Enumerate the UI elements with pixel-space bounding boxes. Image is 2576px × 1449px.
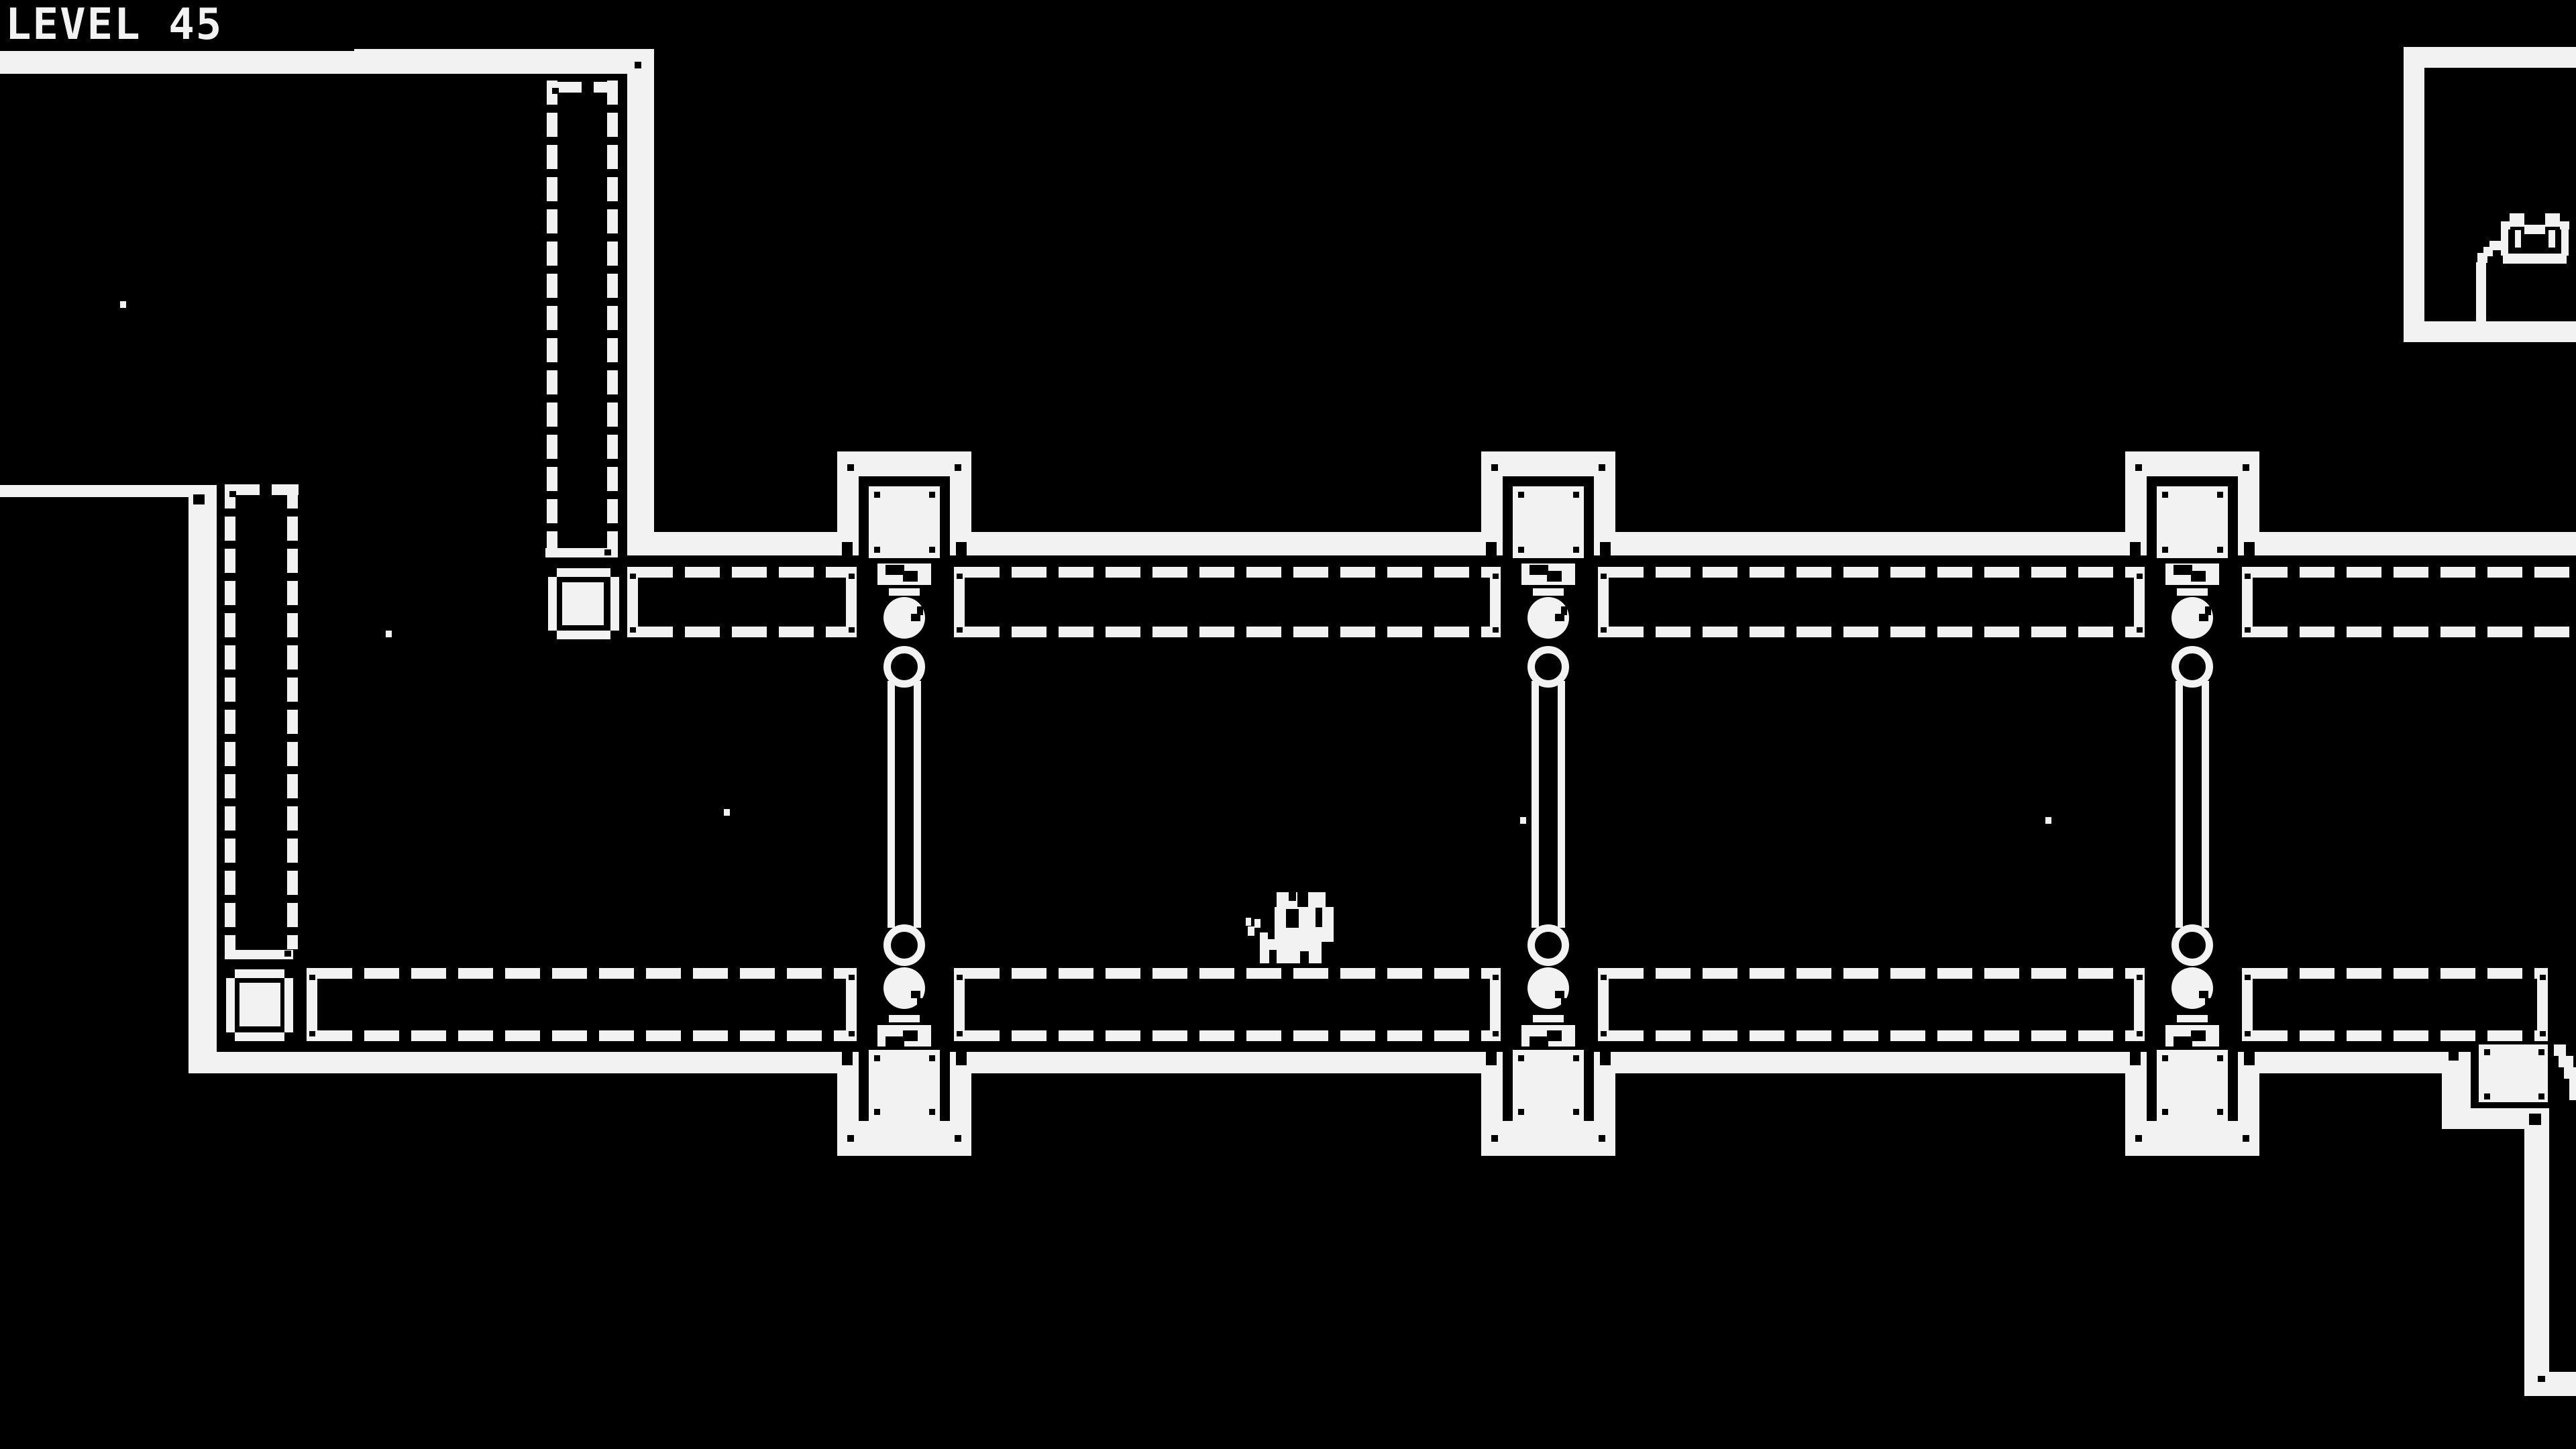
rivet-dot bbox=[2538, 1376, 2545, 1382]
capsule-core bbox=[239, 983, 280, 1026]
wall-right bbox=[627, 74, 654, 532]
cat-tail bbox=[1246, 918, 1251, 926]
capsule-bevel bbox=[226, 969, 235, 978]
dashed-rail bbox=[1609, 968, 2134, 979]
corner-notch bbox=[193, 494, 205, 504]
corner-notch bbox=[2529, 1114, 2541, 1125]
dashed-rail bbox=[2253, 627, 2576, 637]
corner-notch bbox=[842, 542, 853, 555]
cat-tail bbox=[1248, 926, 1254, 936]
dashed-rail bbox=[1609, 627, 2134, 637]
corner-notch bbox=[956, 1052, 967, 1065]
capsule-core bbox=[562, 582, 604, 625]
cat-ear-notch bbox=[1289, 892, 1296, 901]
wall-top-band bbox=[0, 49, 654, 74]
dashed-rail bbox=[638, 567, 846, 578]
vent-slash bbox=[1529, 1036, 1548, 1046]
rivet-dot bbox=[2217, 492, 2223, 498]
rivet-dot bbox=[874, 1109, 880, 1115]
down-shaft-wall bbox=[2524, 1129, 2549, 1372]
dashed-rail bbox=[2253, 567, 2576, 578]
rod-ring bbox=[883, 924, 925, 966]
rod-shaft bbox=[2176, 681, 2183, 928]
rivet-dot bbox=[2538, 1049, 2544, 1055]
cat-ear bbox=[1308, 892, 1326, 908]
vent-slash bbox=[1529, 565, 1548, 575]
capsule-item[interactable] bbox=[226, 969, 293, 1041]
dashed-rail bbox=[965, 968, 1490, 979]
wall-left bbox=[189, 485, 217, 1073]
rod-ring bbox=[1527, 924, 1569, 966]
suit-head-side bbox=[2501, 226, 2508, 256]
corner-notch bbox=[2449, 1052, 2459, 1061]
dashed-rail bbox=[965, 627, 1490, 637]
capsule-bevel bbox=[284, 969, 293, 978]
rod-shaft bbox=[1532, 681, 1539, 928]
rivet-dot bbox=[2540, 975, 2546, 980]
suit-ear bbox=[2545, 213, 2560, 227]
stair-step bbox=[2564, 1067, 2576, 1079]
suit-chin bbox=[2503, 254, 2567, 264]
portrait-frame bbox=[2404, 47, 2576, 342]
capsule-bevel bbox=[610, 631, 619, 639]
rivet-dot bbox=[229, 491, 236, 497]
rivet-dot bbox=[2162, 1109, 2168, 1115]
valve-bar bbox=[1533, 1015, 1564, 1022]
rod-shaft bbox=[1558, 681, 1565, 928]
rivet-dot bbox=[1599, 1135, 1605, 1142]
valve-notch bbox=[917, 606, 923, 615]
vent-slash bbox=[885, 565, 904, 575]
valve-bar bbox=[1533, 588, 1564, 596]
cat-tail bbox=[1254, 919, 1260, 928]
rivet-dot bbox=[2162, 547, 2168, 553]
cat-tail bbox=[1260, 932, 1268, 941]
suit-head-side bbox=[2561, 226, 2569, 256]
cat-leg-gap bbox=[1269, 950, 1277, 963]
star-dot bbox=[2045, 817, 2051, 824]
station-bottom bbox=[1481, 924, 1615, 1156]
valve-notch bbox=[1555, 991, 1564, 998]
rivet-dot bbox=[2217, 547, 2223, 553]
dashed-rail bbox=[2253, 968, 2537, 979]
rivet-dot bbox=[1518, 547, 1524, 553]
cat-leg-gap bbox=[1300, 951, 1309, 963]
rail-end-bar bbox=[225, 950, 293, 959]
suit-ear bbox=[2560, 221, 2569, 229]
vent-slash bbox=[2173, 1036, 2192, 1046]
corner-notch bbox=[2130, 542, 2141, 555]
rivet-dot bbox=[2484, 1093, 2490, 1099]
wall-top-band bbox=[0, 485, 189, 497]
dashed-rail bbox=[547, 80, 557, 548]
rivet-dot bbox=[1573, 1109, 1579, 1115]
star-dot bbox=[724, 809, 730, 816]
rivet-dot bbox=[1573, 492, 1579, 498]
rivet-dot bbox=[955, 1135, 961, 1142]
rod-shaft bbox=[888, 681, 895, 928]
rivet-dot bbox=[2217, 1055, 2223, 1061]
dashed-rail bbox=[965, 567, 1490, 578]
cat-suit-icon bbox=[2424, 68, 2576, 363]
rivet-dot bbox=[309, 975, 315, 980]
rivet-dot bbox=[1573, 1055, 1579, 1061]
capsule-bevel bbox=[548, 568, 557, 577]
vent-slash bbox=[1547, 571, 1562, 582]
dashed-rail bbox=[965, 1030, 1490, 1041]
corner-notch bbox=[2130, 1052, 2141, 1065]
corner-notch bbox=[1600, 1052, 1611, 1065]
player-cat[interactable] bbox=[1246, 891, 1336, 968]
rivet-dot bbox=[847, 1135, 854, 1142]
corner-notch bbox=[842, 1052, 853, 1065]
dashed-rail bbox=[1609, 567, 2134, 578]
valve-notch bbox=[1561, 606, 1567, 615]
rivet-dot bbox=[309, 1031, 315, 1036]
vent-slash bbox=[2191, 1030, 2206, 1041]
corner-notch bbox=[1486, 542, 1497, 555]
suit-side bbox=[2476, 262, 2486, 342]
rivet-dot bbox=[1518, 492, 1524, 498]
corner-notch bbox=[2244, 542, 2255, 555]
capsule-bevel bbox=[284, 1032, 293, 1041]
rivet-dot bbox=[1599, 464, 1605, 471]
capsule-bevel bbox=[226, 1032, 235, 1041]
station-bottom bbox=[2125, 924, 2259, 1156]
valve-notch bbox=[1561, 998, 1567, 1007]
dashed-rail bbox=[317, 968, 846, 979]
vent-slash bbox=[903, 571, 918, 582]
rivet-dot bbox=[874, 547, 880, 553]
rivet-dot bbox=[1518, 1109, 1524, 1115]
dashed-rail bbox=[638, 627, 846, 637]
rivet-dot bbox=[1491, 464, 1498, 471]
star-dot bbox=[386, 631, 392, 637]
cat-eye bbox=[1316, 908, 1322, 927]
rod-ring bbox=[2171, 924, 2213, 966]
dashed-rail bbox=[287, 484, 298, 949]
stair-step bbox=[2559, 1056, 2573, 1067]
rivet-dot bbox=[2243, 1135, 2249, 1142]
corner-notch bbox=[1486, 1052, 1497, 1065]
cat-eye bbox=[1286, 909, 1299, 928]
station-bottom bbox=[837, 924, 971, 1156]
valve-notch bbox=[2205, 606, 2211, 615]
rod-shaft bbox=[914, 681, 921, 928]
valve-bar bbox=[2177, 588, 2208, 596]
suit-shoulder bbox=[2477, 253, 2487, 263]
rivet-dot bbox=[552, 88, 559, 94]
down-shaft-floor bbox=[2524, 1372, 2576, 1396]
capsule-bevel bbox=[610, 568, 619, 577]
rivet-dot bbox=[2540, 1031, 2546, 1036]
dashed-rail bbox=[607, 80, 618, 548]
dashed-rail bbox=[317, 1030, 846, 1041]
rivet-dot bbox=[847, 464, 854, 471]
suit-ear bbox=[2510, 213, 2524, 227]
rivet-dot bbox=[2484, 1049, 2490, 1055]
rivet-dot bbox=[2243, 464, 2249, 471]
rivet-dot bbox=[2538, 1093, 2544, 1099]
level-label: LEVEL 45 bbox=[0, 0, 354, 51]
game-screen: LEVEL 45 bbox=[0, 0, 2576, 1449]
corner-notch bbox=[956, 542, 967, 555]
dashed-rail bbox=[2253, 1030, 2537, 1041]
vent-slash bbox=[885, 1036, 904, 1046]
suit-brow bbox=[2524, 225, 2545, 234]
vent-slash bbox=[2191, 571, 2206, 582]
capsule-bevel bbox=[548, 631, 557, 639]
valve-notch bbox=[2199, 991, 2208, 998]
vent-slash bbox=[903, 1030, 918, 1041]
rivet-dot bbox=[955, 464, 961, 471]
stair-step bbox=[2554, 1044, 2566, 1056]
vent-slash bbox=[2173, 565, 2192, 575]
capsule-item[interactable] bbox=[548, 568, 619, 639]
rivet-dot bbox=[630, 574, 636, 579]
rivet-dot bbox=[929, 1055, 935, 1061]
valve-notch bbox=[917, 998, 923, 1007]
star-dot bbox=[120, 301, 126, 308]
dashed-rail bbox=[1609, 1030, 2134, 1041]
rivet-dot bbox=[2162, 1055, 2168, 1061]
exit-shoulder bbox=[2442, 1073, 2471, 1110]
valve-notch bbox=[911, 991, 920, 998]
rivet-dot bbox=[1573, 547, 1579, 553]
rivet-dot bbox=[284, 951, 291, 957]
dashed-rail bbox=[225, 484, 235, 959]
rivet-dot bbox=[874, 492, 880, 498]
suit-eye bbox=[2548, 230, 2555, 248]
rivet-dot bbox=[2135, 1135, 2142, 1142]
rivet-dot bbox=[1491, 1135, 1498, 1142]
rivet-dot bbox=[630, 627, 636, 633]
valve-bar bbox=[889, 1015, 920, 1022]
rivet-dot bbox=[604, 549, 611, 555]
rivet-dot bbox=[874, 1055, 880, 1061]
stair-step bbox=[2569, 1079, 2576, 1100]
rivet-dot bbox=[929, 492, 935, 498]
valve-bar bbox=[2177, 1015, 2208, 1022]
suit-ear bbox=[2501, 221, 2510, 229]
rivet-dot bbox=[929, 547, 935, 553]
rivet-dot bbox=[929, 1109, 935, 1115]
rod-shaft bbox=[2202, 681, 2209, 928]
rivet-dot bbox=[2135, 464, 2142, 471]
cat-head bbox=[1275, 907, 1334, 942]
rivet-dot bbox=[2162, 492, 2168, 498]
valve-notch bbox=[2205, 998, 2211, 1007]
corner-notch bbox=[1600, 542, 1611, 555]
valve-bar bbox=[889, 588, 920, 596]
rivet-dot bbox=[635, 62, 641, 68]
corner-notch bbox=[2244, 1052, 2255, 1065]
suit-eye bbox=[2515, 230, 2521, 248]
rivet-dot bbox=[2217, 1109, 2223, 1115]
vent-slash bbox=[1547, 1030, 1562, 1041]
rivet-dot bbox=[1518, 1055, 1524, 1061]
